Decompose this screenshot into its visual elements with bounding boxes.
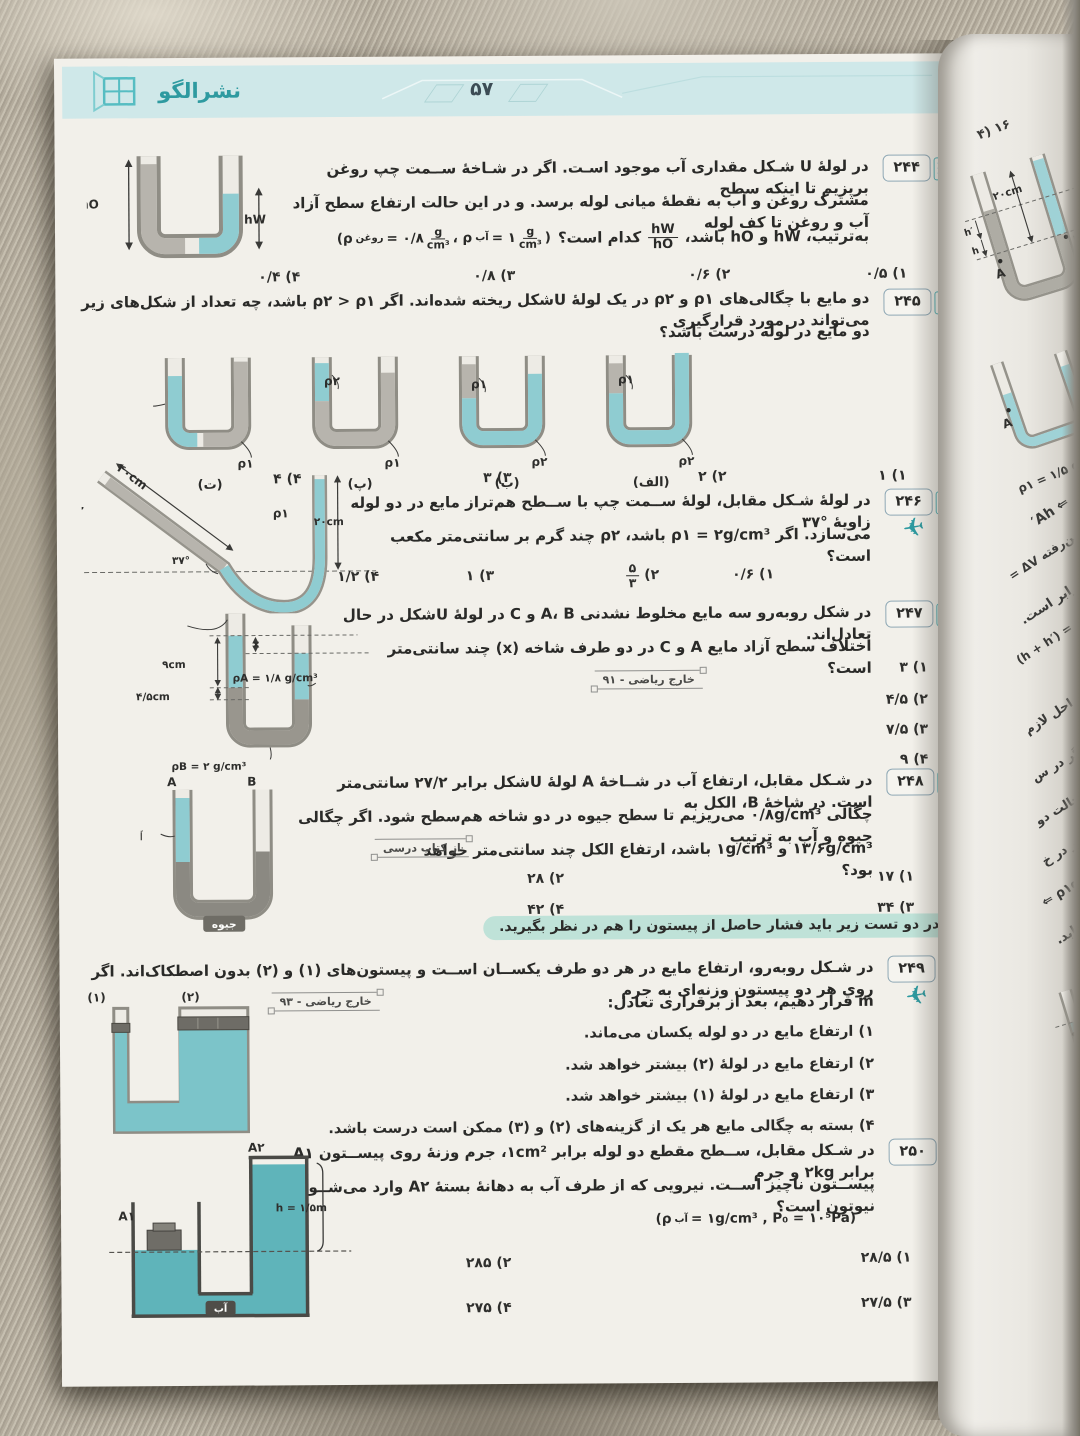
q249-option-3: ۳) ارتفاع مایع در لولهٔ (۱) بیشتر خواهد … bbox=[565, 1087, 874, 1105]
q248-text-line3: ‎۱۳/۶g/cm³‎ و ‎۱g/cm³‎ باشد، ارتفاع الکل… bbox=[398, 838, 873, 884]
q244-ratio-fraction: hWhO bbox=[648, 223, 678, 252]
q250-fig-h-label: h = ۱/۵m bbox=[276, 1202, 327, 1214]
rp-fig1-h: h bbox=[971, 245, 981, 258]
q246-fig-rho1: ρ۱ bbox=[273, 506, 289, 520]
q244-option-3: ۳) ۰/۸ bbox=[473, 268, 515, 284]
q250-fig-a1-label: A۱ bbox=[118, 1209, 135, 1223]
textbook-page: نشرالگو ۵۷ ۲۴۴ در لولهٔ U شـکل مقداری آب… bbox=[54, 53, 962, 1386]
facing-page-edge: ۱۶ (۴ ۲۰cm h′ h A B bbox=[938, 34, 1080, 1436]
q245-pe-rho-top: ρ۲ bbox=[324, 374, 341, 388]
q244-text-line3: به‌ترتیب، ‎hW‎ و ‎hO‎ باشد، hWhO کدام اس… bbox=[224, 222, 869, 255]
q245-be-rho-top: ρ۱ bbox=[471, 377, 487, 391]
piston-note: در دو تست زیر باید فشار حاصل از پیستون ر… bbox=[483, 913, 955, 940]
q249-option-1: ۱) ارتفاع مایع در دو لوله یکسان می‌ماند. bbox=[584, 1024, 874, 1042]
q247-fig-rhoB: ρB = ۲ g/cm³ bbox=[171, 761, 246, 773]
q247-fig-rhoC: ρC = ۰/۸ g/cm³ bbox=[117, 613, 118, 626]
q244-option-1: ۱) ۰/۵ bbox=[865, 266, 907, 282]
q249-option-4: ۴) بسته به چگالی مایع هر یک از گزینه‌های… bbox=[328, 1118, 874, 1137]
q249-text-line2: ‎m‎ قرار دهیم، بعد از برقراری تعادل: bbox=[554, 991, 874, 1015]
q246-fig-rho2: ρ۲ bbox=[81, 504, 84, 518]
q250-option-2: ۲) ۲۸۵ bbox=[466, 1255, 512, 1271]
q246-text-line2: می‌سازد. اگر ‎ρ۱ = ۲g/cm³‎ باشد، ‎ρ۲‎ چن… bbox=[346, 524, 871, 571]
q244-option-4: ۴) ۰/۴ bbox=[258, 269, 300, 285]
q246-fig-angle: ۳۷° bbox=[172, 555, 190, 567]
q250-option-1: ۱) ۲۸/۵ bbox=[861, 1250, 912, 1266]
q244-density-formula: (ρروغن = ۰/۸ gcm³ ، ρآب = ۱ gcm³ ) bbox=[337, 226, 551, 252]
q245-te-rho-top: ρ۲ bbox=[135, 401, 136, 415]
q247-fig-9cm: ۹cm bbox=[162, 659, 186, 671]
rp-utube-figure-1: ۲۰cm h′ h A B bbox=[941, 130, 1080, 338]
q246-option-4: ۴) ۱/۲ bbox=[337, 569, 379, 585]
page-header-band: نشرالگو ۵۷ bbox=[62, 61, 946, 118]
q248-fig-mercury-label: جیوه bbox=[212, 919, 237, 931]
page-stack-edge bbox=[1062, 0, 1080, 1436]
q250-option-3: ۳) ۲۷/۵ bbox=[861, 1295, 912, 1311]
q250-utube-figure: A۱ A۲ h = ۱/۵m آب bbox=[101, 1137, 374, 1337]
q245-alef-rho-top: ρ۱ bbox=[618, 372, 634, 386]
q245-be-rho-bottom: ρ۲ bbox=[531, 455, 548, 469]
q247-source-badge: خارج ریاضی - ۹۱ bbox=[595, 670, 703, 690]
q244-l3b: کدام است؟ bbox=[558, 227, 641, 249]
q245-option-2: ۲) ۲ bbox=[698, 469, 726, 485]
q248-option-1: ۱) ۱۷ bbox=[877, 869, 914, 885]
q245-option-1: ۱) ۱ bbox=[878, 468, 906, 484]
q245-pe-rho-bottom: ρ۱ bbox=[384, 456, 400, 470]
q249-fig-piston2-label: (۲) bbox=[181, 990, 199, 1004]
book-photo: نشرالگو ۵۷ ۲۴۴ در لولهٔ U شـکل مقداری آب… bbox=[0, 0, 1080, 1436]
q246-option-1: ۱) ۰/۶ bbox=[732, 566, 774, 582]
rp-fig1-hprime: h′ bbox=[963, 226, 976, 239]
q245-option-3: ۳) ۳ bbox=[483, 470, 511, 486]
q247-fig-rhoA: ρA = ۱/۸ g/cm³ bbox=[233, 672, 319, 685]
q246-option-2: ۲) ۵۳ bbox=[626, 561, 660, 589]
q247-fig-45cm: ۴/۵cm bbox=[136, 691, 170, 703]
q248-source-badge: از کتاب درسی bbox=[375, 838, 469, 858]
q249-fig-piston1-label: (۱) bbox=[88, 990, 106, 1004]
q246-option-3: ۳) ۱ bbox=[466, 568, 494, 584]
q247-utube-figure: ۹cm ۴/۵cm x ρC = ۰/۸ g/cm³ ρA = ۱/۸ g/cm… bbox=[117, 596, 428, 776]
rp-option-fragment: ۱۶ (۴ bbox=[975, 117, 1012, 143]
q245-text-line2: دو مایع در لوله درست باشد؟ bbox=[570, 321, 870, 345]
q249-option-2: ۲) ارتفاع مایع در لولهٔ (۲) بیشتر خواهد … bbox=[565, 1056, 874, 1074]
q250-option-4: ۴) ۲۷۵ bbox=[466, 1300, 512, 1316]
q246-fig-len20: ۲۰cm bbox=[314, 516, 344, 528]
q250-formula: (ρآب = ۱g/cm³ , P₀ = ۱۰⁵Pa) bbox=[656, 1210, 857, 1227]
q248-fig-label-a: A bbox=[167, 775, 177, 789]
facing-page-content: ۱۶ (۴ ۲۰cm h′ h A B bbox=[939, 39, 1080, 1436]
q248-fig-water-label: آب bbox=[140, 830, 143, 843]
q244-l3a: به‌ترتیب، ‎hW‎ و ‎hO‎ باشد، bbox=[685, 225, 869, 248]
q244-fig-label-ho: hO bbox=[86, 197, 98, 211]
q250-fig-a2-label: A۲ bbox=[248, 1140, 265, 1154]
q248-fig-label-b: B bbox=[247, 775, 256, 788]
q245-alef-rho-bottom: ρ۲ bbox=[678, 454, 695, 468]
header-decor-lines bbox=[62, 61, 942, 118]
q244-utube-figure: hO hW bbox=[86, 145, 302, 272]
q247-fig-x: x bbox=[253, 639, 260, 651]
q244-option-2: ۲) ۰/۶ bbox=[688, 267, 730, 283]
q248-option-2: ۲) ۲۸ bbox=[527, 871, 564, 887]
q250-fig-water-label: آب bbox=[214, 1302, 228, 1315]
q248-utube-figure: A B آب جیوه bbox=[140, 775, 326, 944]
q244-fig-label-hw: hW bbox=[244, 212, 266, 226]
